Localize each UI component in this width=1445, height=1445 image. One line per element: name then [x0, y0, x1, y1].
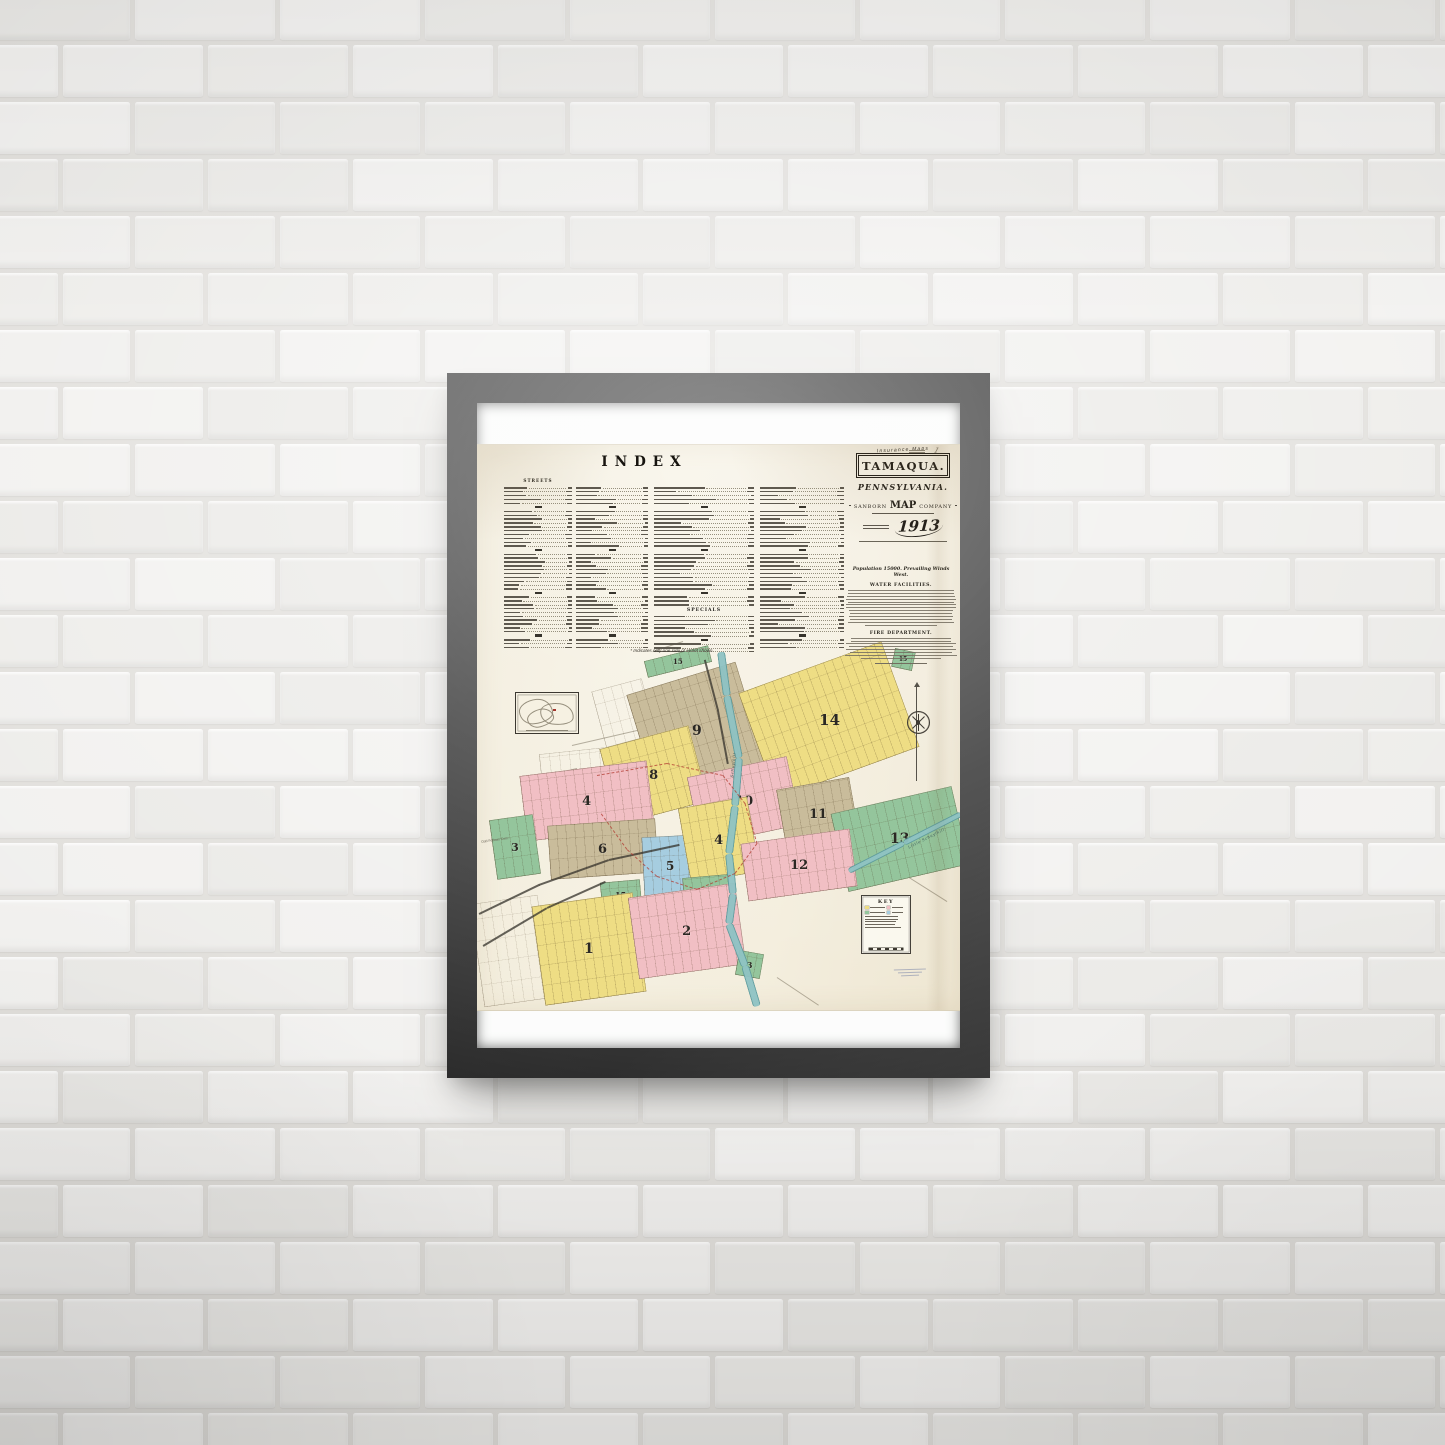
page-number [751, 495, 754, 496]
page-number [645, 612, 649, 613]
entry-text [760, 616, 809, 617]
index-row [576, 525, 648, 528]
page-number [751, 530, 754, 531]
brick [1368, 45, 1445, 97]
brick [1005, 330, 1145, 382]
dot-leader [809, 554, 838, 555]
brick [135, 1128, 275, 1180]
brick [0, 558, 130, 610]
dot-leader [608, 631, 639, 632]
entry-text [576, 511, 615, 512]
streets-header: STREETS [504, 478, 572, 483]
dot-leader [797, 620, 837, 621]
brick [1295, 1128, 1435, 1180]
index-row [504, 544, 572, 547]
entry-text [654, 542, 706, 543]
brick [715, 1356, 855, 1408]
key-row [865, 921, 907, 922]
index-row [760, 587, 844, 590]
dot-leader [619, 643, 642, 644]
index-row [576, 568, 648, 571]
page-number [838, 545, 844, 546]
dot-leader [686, 616, 746, 617]
entry-text [760, 515, 808, 516]
index-row [760, 607, 844, 610]
section-divider [535, 634, 542, 636]
brick [1005, 672, 1145, 724]
year-row: 1913 [849, 517, 957, 537]
dot-leader [791, 608, 839, 609]
brick [1295, 672, 1435, 724]
entry-text [504, 631, 525, 632]
dot-leader [810, 558, 839, 559]
index-row [654, 490, 754, 493]
page-number [749, 577, 754, 578]
dot-leader [786, 523, 838, 524]
district-3: 3 [489, 814, 541, 880]
index-row [654, 579, 754, 582]
index-row [654, 642, 754, 645]
entry-text [654, 573, 680, 574]
section-divider [799, 592, 806, 594]
entry-text [576, 542, 591, 543]
brick [1295, 1356, 1435, 1408]
dot-leader [787, 538, 838, 539]
page-number [568, 518, 572, 519]
brick [643, 273, 783, 325]
dot-leader [607, 573, 641, 574]
brick [1368, 957, 1445, 1009]
index-row [760, 622, 844, 625]
index-row [504, 490, 572, 493]
entry-text [504, 542, 531, 543]
section-divider [535, 506, 542, 508]
brick [0, 1185, 58, 1237]
entry-text [654, 569, 691, 570]
dot-leader [691, 601, 746, 602]
brick [135, 1242, 275, 1294]
page-number [568, 522, 572, 523]
dot-leader [600, 624, 640, 625]
dot-leader [596, 519, 641, 520]
index-row [504, 638, 572, 641]
index-row [576, 603, 648, 606]
index-row [760, 603, 844, 606]
brick [1295, 786, 1435, 838]
page-number [643, 511, 648, 512]
brick [1078, 45, 1218, 97]
brick [0, 900, 130, 952]
index-row [576, 638, 648, 641]
dot-leader [523, 601, 567, 602]
key-text-line [892, 912, 904, 913]
page-number [839, 584, 844, 585]
index-row [576, 564, 648, 567]
brick [63, 45, 203, 97]
dot-leader [681, 573, 748, 574]
text-line [847, 596, 955, 597]
state-title: PENNSYLVANIA. [849, 482, 957, 492]
entry-text [760, 511, 805, 512]
compass-star [907, 711, 930, 734]
brick [715, 216, 855, 268]
key-text-line [865, 916, 898, 917]
index-columns: SPECIALS [477, 486, 849, 650]
entry-text [504, 534, 529, 535]
dot-leader [544, 519, 567, 520]
entry-text [576, 588, 606, 589]
entry-text [654, 627, 685, 628]
population-line: Population 15000. Prevailing Winds West. [845, 566, 957, 578]
brick [1078, 159, 1218, 211]
index-row [760, 611, 844, 614]
index-row [654, 630, 754, 633]
brick [1295, 102, 1435, 154]
brick [1078, 729, 1218, 781]
entry-text [654, 534, 690, 535]
brick [1150, 1014, 1290, 1066]
brick [1078, 273, 1218, 325]
brick [135, 900, 275, 952]
entry-text [760, 604, 794, 605]
entry-text [654, 487, 705, 488]
page-number [748, 545, 754, 546]
brick [135, 444, 275, 496]
text-line [850, 619, 953, 620]
page-number [748, 616, 754, 617]
entry-text [760, 588, 791, 589]
brick [1368, 843, 1445, 895]
entry-text [760, 584, 792, 585]
index-row [504, 517, 572, 520]
entry-text [504, 581, 524, 582]
key-row [865, 927, 907, 928]
page-number [750, 561, 754, 562]
brick [280, 1356, 420, 1408]
compass-rose [903, 685, 931, 781]
entry-text [504, 561, 545, 562]
dot-leader [531, 647, 564, 648]
entry-text [654, 526, 692, 527]
brick [0, 843, 58, 895]
entry-text [576, 608, 618, 609]
index-row [576, 521, 648, 524]
page-number [749, 503, 754, 504]
brick [208, 729, 348, 781]
district-number: 1 [584, 942, 594, 956]
index-row [576, 552, 648, 555]
brick [63, 1185, 203, 1237]
index-row [654, 529, 754, 532]
brick [1223, 1071, 1363, 1123]
key-title: KEY [865, 899, 907, 905]
index-row [576, 579, 648, 582]
brick [0, 1128, 130, 1180]
page-number [566, 577, 572, 578]
entry-text [576, 499, 616, 500]
page-number [839, 518, 844, 519]
entry-text [760, 503, 795, 504]
dot-leader [809, 581, 836, 582]
entry-text [576, 554, 595, 555]
entry-text [654, 620, 715, 621]
brick [0, 216, 130, 268]
entry-text [504, 515, 537, 516]
index-row [654, 626, 754, 629]
brick [353, 1071, 493, 1123]
entry-text [504, 545, 526, 546]
index-row [576, 587, 648, 590]
key-text-line [892, 907, 904, 908]
entry-text [654, 511, 712, 512]
dot-leader [598, 601, 643, 602]
brick [643, 1413, 783, 1445]
index-row [760, 599, 844, 602]
page-number [569, 573, 572, 574]
page-number [566, 511, 572, 512]
entry-text [654, 491, 676, 492]
page-number [643, 581, 648, 582]
brick [280, 1128, 420, 1180]
brick [788, 159, 928, 211]
brick [0, 159, 58, 211]
brick [0, 786, 130, 838]
index-row [504, 618, 572, 621]
dot-leader [536, 608, 566, 609]
index-row [760, 575, 844, 578]
page-number [642, 573, 648, 574]
entry-text [576, 515, 609, 516]
brick [0, 102, 130, 154]
sanborn-map-sheet: INDEX STREETS SPECIALS * Indicates only … [477, 444, 960, 1011]
brick [788, 45, 928, 97]
publisher-word-left: SANBORN [854, 504, 887, 510]
entry-text [760, 608, 790, 609]
page-number [641, 530, 648, 531]
dot-leader [779, 495, 835, 496]
index-row [654, 619, 754, 622]
color-chip [887, 906, 891, 909]
index-row [654, 622, 754, 625]
brick [0, 1356, 130, 1408]
dot-leader [716, 620, 746, 621]
entry-text [504, 627, 520, 628]
text-line [846, 604, 956, 605]
page-number [643, 643, 648, 644]
brick [1440, 216, 1445, 268]
index-row [654, 552, 754, 555]
page-number [567, 503, 572, 504]
dot-leader [534, 511, 565, 512]
dot-leader [809, 546, 836, 547]
entry-text [504, 639, 530, 640]
dot-leader [524, 491, 564, 492]
entry-text [576, 612, 614, 613]
dot-leader [707, 589, 746, 590]
entry-text [760, 561, 794, 562]
page-number [569, 569, 572, 570]
dot-leader [616, 511, 641, 512]
index-row [504, 568, 572, 571]
brick [353, 159, 493, 211]
entry-text [504, 511, 532, 512]
brick [63, 1413, 203, 1445]
brick [1440, 330, 1445, 382]
brick [1368, 159, 1445, 211]
index-row [576, 607, 648, 610]
brick [1150, 1242, 1290, 1294]
entry-text [576, 545, 619, 546]
page-number [750, 518, 754, 519]
index-row [760, 490, 844, 493]
entry-text [654, 577, 693, 578]
index-row [504, 572, 572, 575]
section-divider [799, 549, 806, 551]
brick [425, 1242, 565, 1294]
brick [425, 0, 565, 40]
page-number [568, 631, 572, 632]
dot-leader [522, 612, 566, 613]
brick [1150, 786, 1290, 838]
dot-leader [691, 605, 748, 606]
brick [0, 330, 130, 382]
index-row [504, 521, 572, 524]
brick [1368, 729, 1445, 781]
brick [135, 102, 275, 154]
entry-text [760, 623, 778, 624]
index-row [654, 486, 754, 489]
brick [425, 216, 565, 268]
dot-leader [538, 554, 566, 555]
index-column: SPECIALS [654, 486, 754, 654]
brick [135, 1014, 275, 1066]
brick [1223, 1413, 1363, 1445]
page-number [645, 522, 648, 523]
section-divider [609, 549, 616, 551]
dot-leader [706, 488, 746, 489]
brick [1223, 45, 1363, 97]
brick [1440, 102, 1445, 154]
page-number [747, 600, 754, 601]
page-number [748, 511, 754, 512]
entry-text [760, 534, 794, 535]
brick [1440, 1242, 1445, 1294]
dot-leader [533, 542, 567, 543]
brick [1295, 444, 1435, 496]
brick [208, 1185, 348, 1237]
dot-leader [686, 628, 747, 629]
page-number [565, 534, 572, 535]
dot-leader [795, 534, 839, 535]
entry-text [760, 565, 800, 566]
page-number [643, 554, 648, 555]
section-divider [701, 549, 708, 551]
dot-leader [538, 515, 563, 516]
key-row [865, 924, 907, 925]
index-row [654, 572, 754, 575]
entry-text [654, 561, 696, 562]
dot-leader [690, 503, 747, 504]
brick [0, 672, 130, 724]
dot-leader [796, 562, 838, 563]
page-number [747, 557, 754, 558]
dot-leader [534, 523, 566, 524]
brick [63, 843, 203, 895]
page-number [568, 557, 572, 558]
brick [860, 1242, 1000, 1294]
index-row [760, 595, 844, 598]
entry-text [576, 503, 613, 504]
dot-leader [709, 624, 747, 625]
page-number [749, 624, 754, 625]
brick [0, 1014, 130, 1066]
page-number [838, 627, 844, 628]
entry-text [504, 491, 523, 492]
picture-frame: INDEX STREETS SPECIALS * Indicates only … [447, 373, 990, 1078]
entry-text [576, 619, 599, 620]
page-number [839, 616, 844, 617]
entry-text [760, 518, 780, 519]
entry-text [654, 545, 710, 546]
index-row [576, 560, 648, 563]
brick [135, 330, 275, 382]
brick [0, 1242, 130, 1294]
page-number [566, 584, 572, 585]
page-number [841, 604, 844, 605]
index-row [760, 510, 844, 513]
entry-text [654, 624, 708, 625]
index-row [576, 618, 648, 621]
page-number [565, 515, 572, 516]
page-number [749, 584, 754, 585]
dot-leader [528, 546, 567, 547]
dot-leader [526, 581, 566, 582]
entry-text [504, 588, 518, 589]
brick [280, 558, 420, 610]
dot-leader [521, 628, 567, 629]
entry-text [654, 584, 712, 585]
index-row [504, 575, 572, 578]
dot-leader [797, 647, 837, 648]
district-number: 8 [649, 769, 658, 782]
dot-leader [540, 558, 567, 559]
dot-leader [610, 515, 641, 516]
page-number [751, 631, 754, 632]
page-number [642, 596, 648, 597]
page-number [841, 565, 844, 566]
index-row [576, 537, 648, 540]
entry-text [576, 600, 597, 601]
page-number [750, 573, 754, 574]
key-lines [865, 906, 907, 927]
sheet-header-micro [909, 450, 925, 454]
text-line [861, 658, 942, 659]
dot-leader [619, 616, 640, 617]
key-row [865, 916, 907, 917]
section-divider [535, 549, 542, 551]
page-number [566, 616, 572, 617]
page-number [566, 538, 572, 539]
entry-text [504, 619, 537, 620]
page-number [839, 623, 844, 624]
district-number: 5 [666, 860, 674, 872]
dot-leader [546, 562, 567, 563]
brick [1078, 957, 1218, 1009]
brick [353, 1413, 493, 1445]
brick [498, 45, 638, 97]
dot-leader [521, 585, 565, 586]
dot-leader [807, 597, 837, 598]
